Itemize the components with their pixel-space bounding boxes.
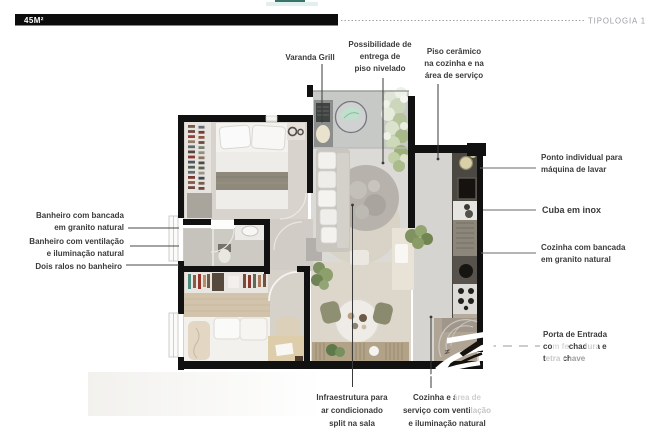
svg-text:Cuba em inox: Cuba em inox: [542, 205, 601, 215]
svg-text:Dois ralos no banheiro: Dois ralos no banheiro: [35, 262, 122, 271]
svg-text:TIPOLOGIA 1: TIPOLOGIA 1: [588, 17, 646, 26]
svg-text:em granito natural: em granito natural: [54, 223, 124, 232]
svg-text:Porta de Entrada: Porta de Entrada: [543, 330, 608, 339]
svg-text:45M²: 45M²: [24, 16, 44, 25]
svg-text:em granito natural: em granito natural: [541, 255, 611, 264]
svg-text:área de serviço: área de serviço: [425, 71, 483, 80]
svg-text:Banheiro com bancada: Banheiro com bancada: [36, 211, 125, 220]
svg-text:split na sala: split na sala: [329, 419, 375, 428]
svg-text:piso nivelado: piso nivelado: [354, 64, 405, 73]
svg-text:Varanda Grill: Varanda Grill: [285, 53, 334, 62]
svg-text:máquina de lavar: máquina de lavar: [541, 165, 606, 174]
svg-text:Banheiro com ventilação: Banheiro com ventilação: [29, 237, 124, 246]
svg-text:Infraestrutura para: Infraestrutura para: [316, 393, 388, 402]
svg-text:Ponto individual para: Ponto individual para: [541, 153, 623, 162]
svg-text:Cozinha com bancada: Cozinha com bancada: [541, 243, 626, 252]
svg-text:na cozinha e na: na cozinha e na: [424, 59, 484, 68]
svg-text:entrega de: entrega de: [360, 52, 401, 61]
svg-text:e iluminação natural: e iluminação natural: [408, 419, 485, 428]
svg-text:Possibilidade de: Possibilidade de: [348, 40, 412, 49]
svg-text:e iluminação natural: e iluminação natural: [47, 249, 124, 258]
svg-text:Piso cerâmico: Piso cerâmico: [427, 47, 481, 56]
svg-text:ar condicionado: ar condicionado: [321, 406, 383, 415]
